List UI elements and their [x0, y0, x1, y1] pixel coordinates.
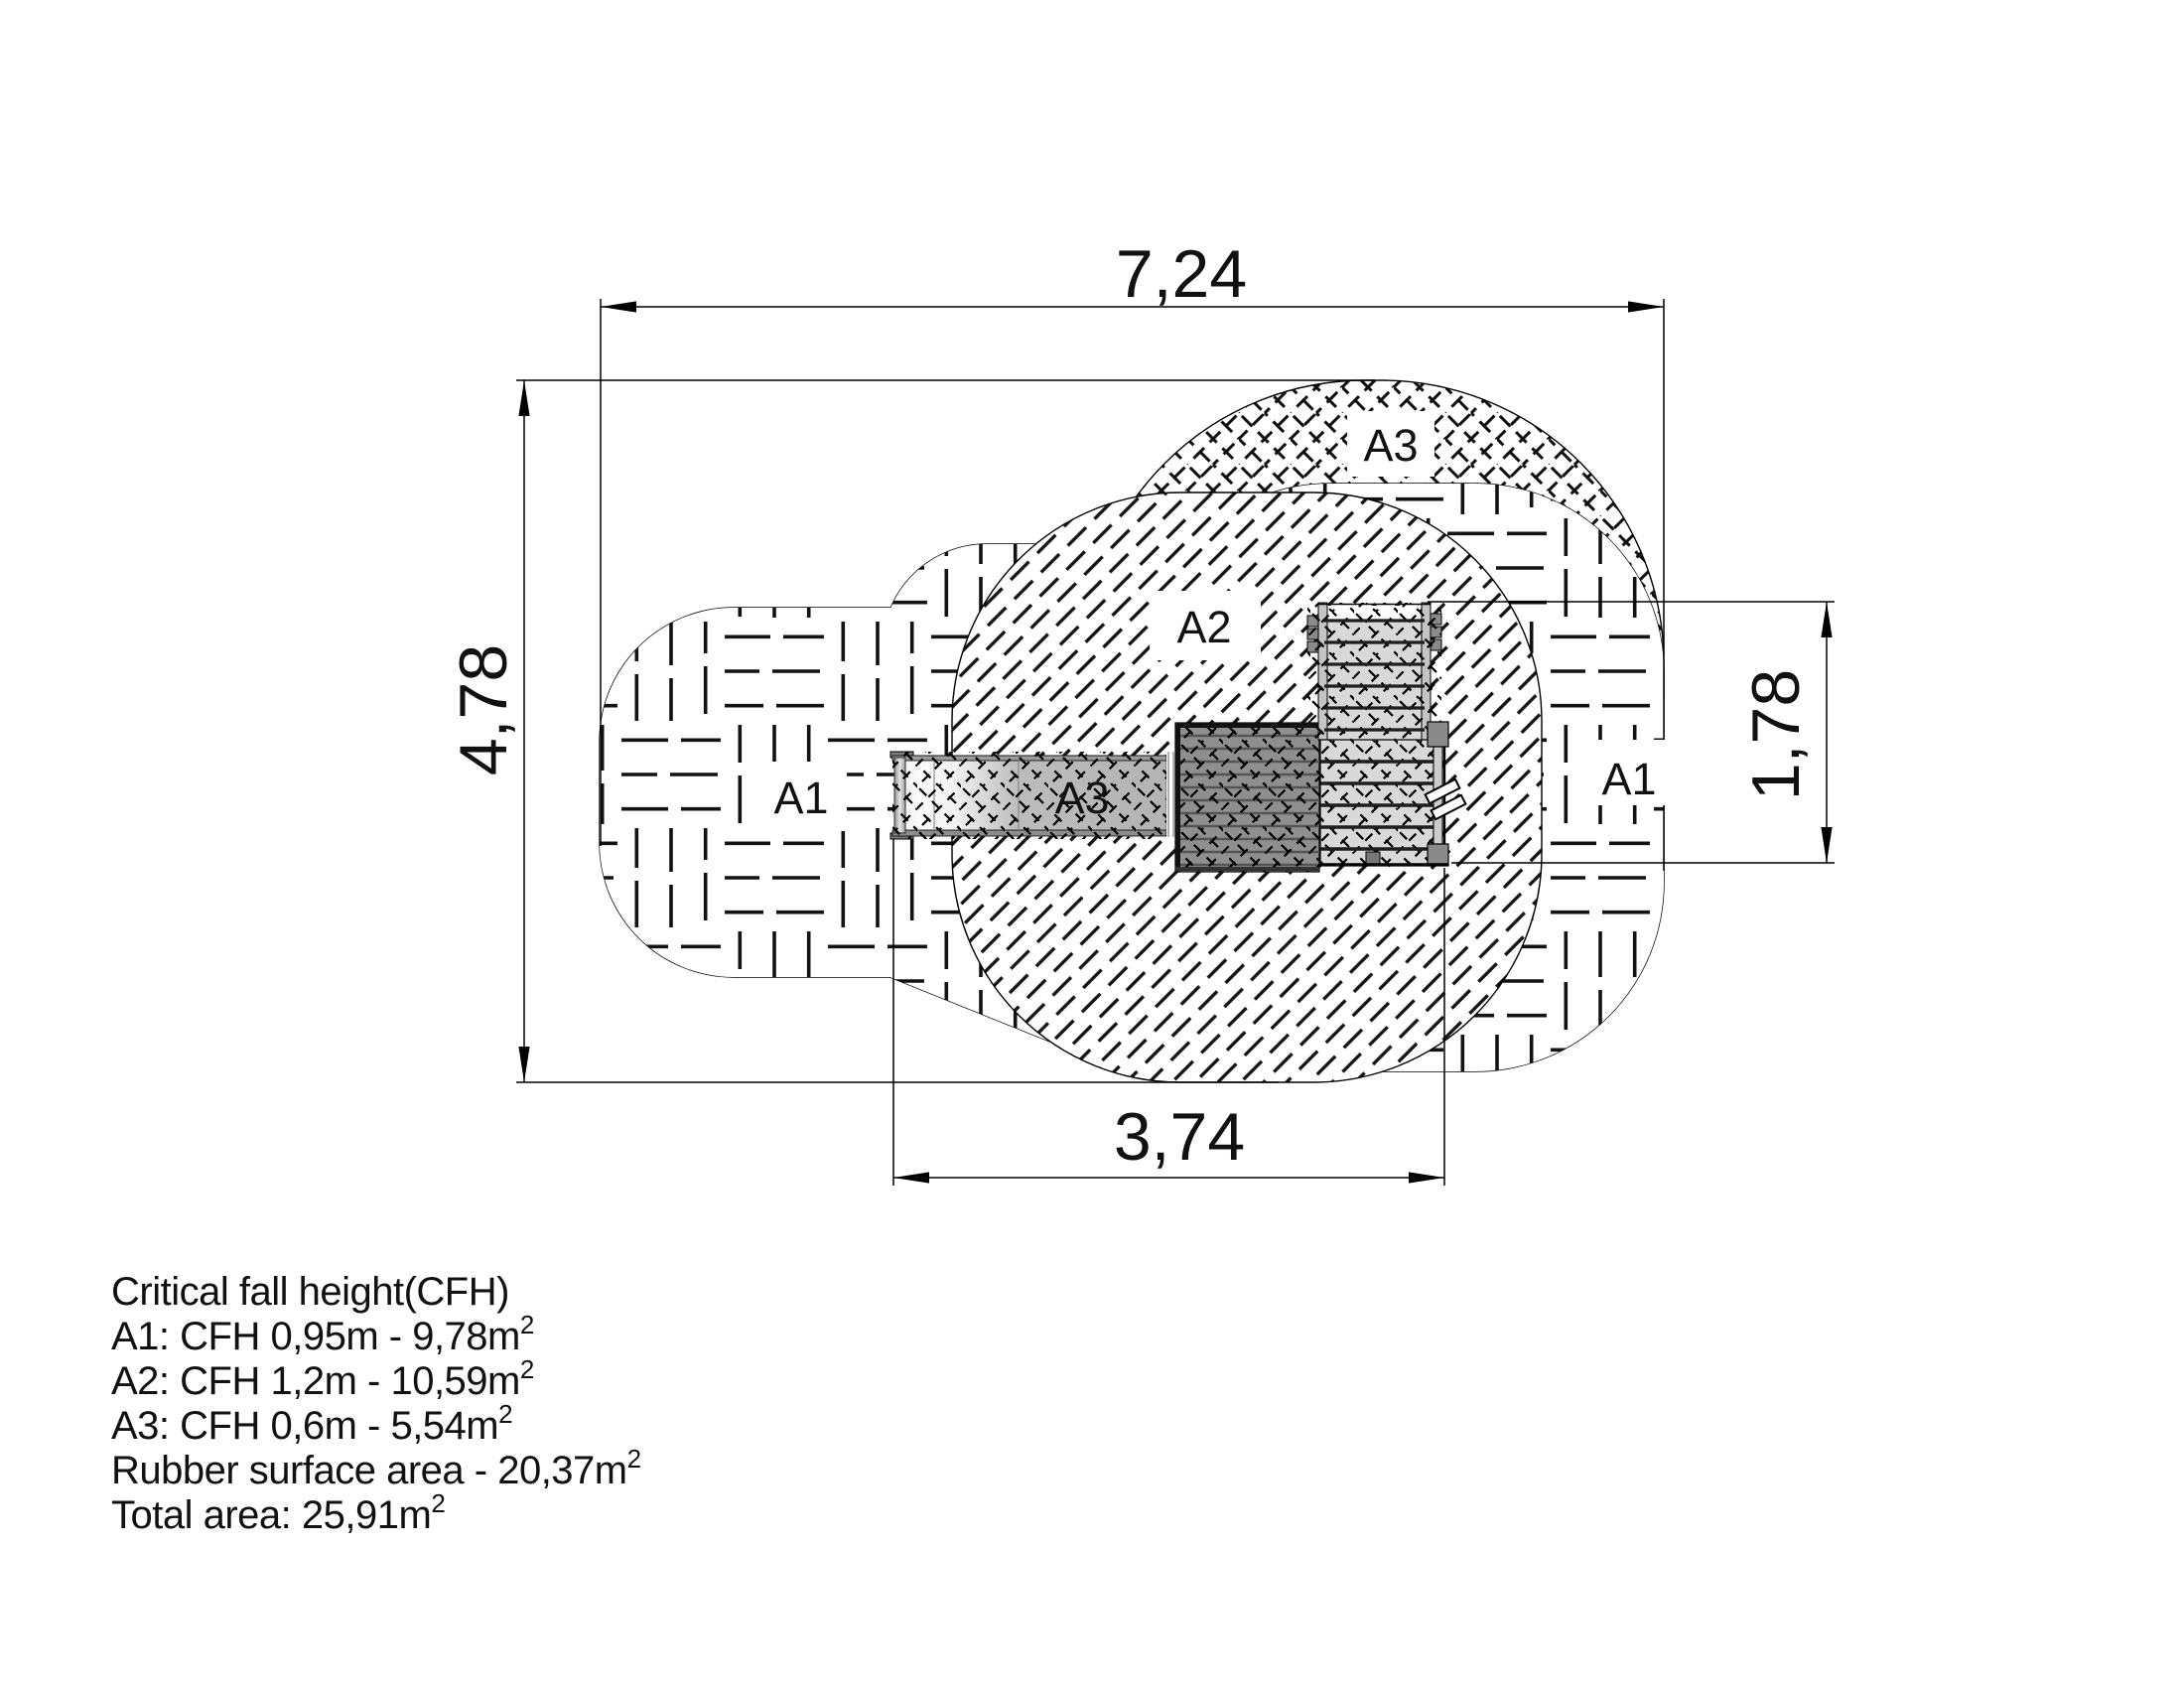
svg-text:7,24: 7,24	[1116, 236, 1247, 312]
svg-text:Critical fall height(CFH): Critical fall height(CFH)	[111, 1270, 509, 1314]
svg-text:A3: A3	[1054, 773, 1109, 823]
svg-text:A2: CFH 1,2m - 10,59m2: A2: CFH 1,2m - 10,59m2	[111, 1354, 534, 1403]
svg-text:A1: CFH 0,95m - 9,78m2: A1: CFH 0,95m - 9,78m2	[111, 1310, 534, 1358]
svg-text:A3: CFH 0,6m - 5,54m2: A3: CFH 0,6m - 5,54m2	[111, 1399, 512, 1448]
svg-text:A2: A2	[1176, 602, 1231, 652]
svg-text:A1: A1	[773, 773, 828, 823]
svg-text:Total area: 25,91m2: Total area: 25,91m2	[111, 1488, 445, 1537]
svg-text:4,78: 4,78	[446, 644, 521, 775]
svg-text:3,74: 3,74	[1114, 1099, 1245, 1175]
svg-text:A1: A1	[1601, 754, 1656, 804]
svg-text:Rubber surface area - 20,37m2: Rubber surface area - 20,37m2	[111, 1444, 641, 1492]
svg-text:A3: A3	[1363, 420, 1418, 471]
svg-text:1,78: 1,78	[1738, 669, 1814, 800]
